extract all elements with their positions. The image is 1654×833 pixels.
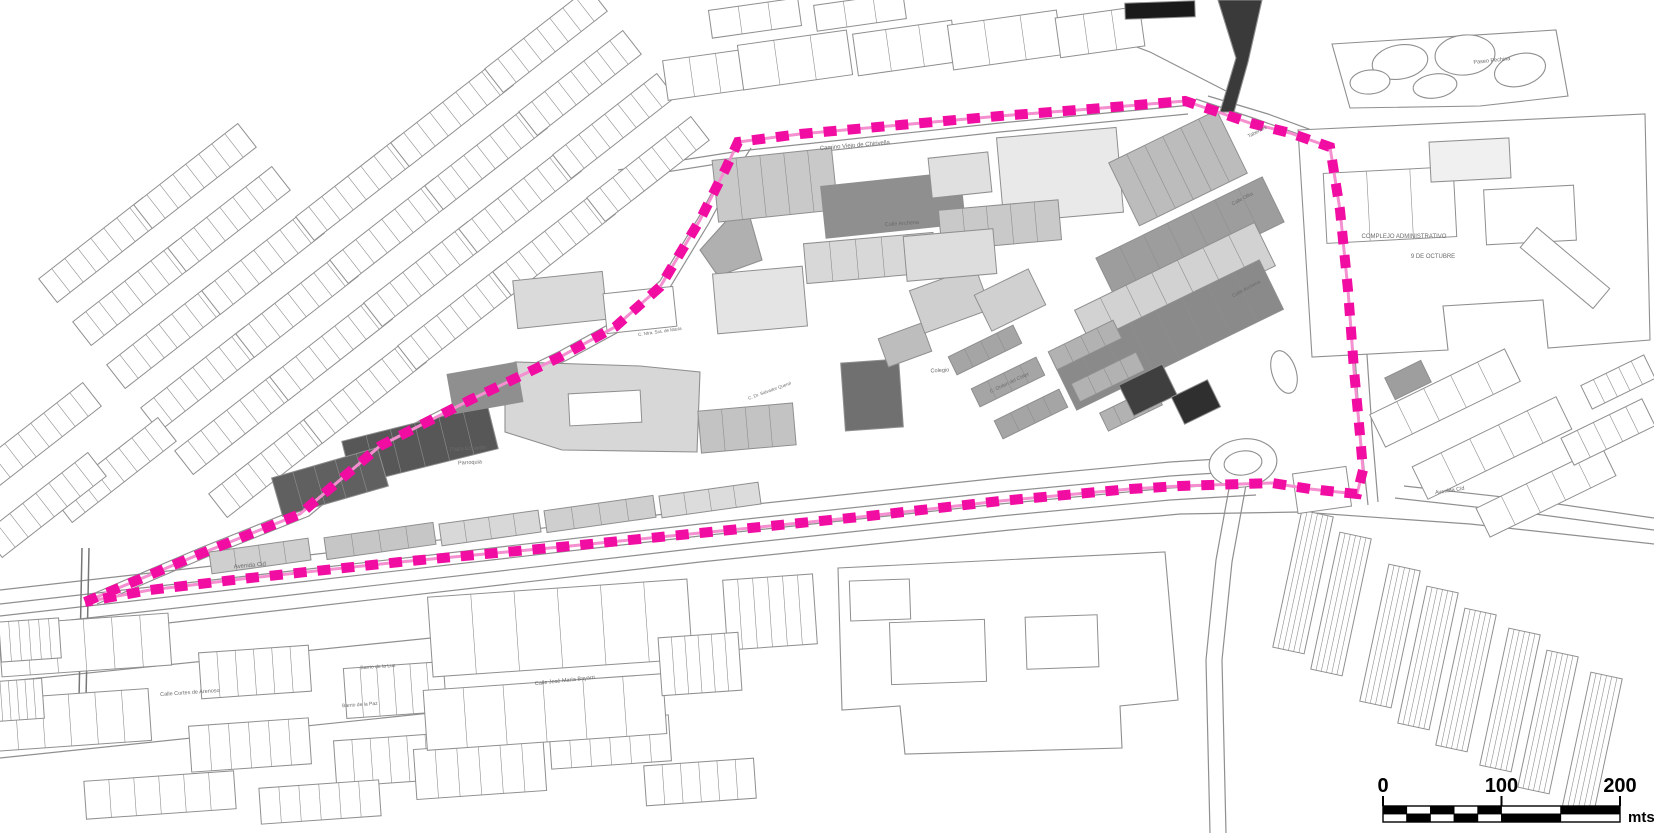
building-block [1125, 1, 1196, 19]
scalebar-label: 100 [1485, 775, 1518, 797]
south-city-block [658, 632, 742, 695]
building-block [568, 390, 642, 426]
street-label: Colegio [930, 368, 949, 375]
building-block [889, 619, 986, 684]
street-label: COMPLEJO ADMINISTRATIVO [1362, 234, 1447, 240]
scalebar-segment [1502, 814, 1561, 822]
scalebar-segment [1454, 814, 1478, 822]
map-page: Avenida CidCamino Viejo de ChirivellaCal… [0, 0, 1654, 833]
building-block [1429, 138, 1511, 182]
building-block [849, 579, 910, 621]
building-block [698, 403, 796, 453]
scalebar-segment [1502, 806, 1561, 814]
building-block [713, 266, 808, 334]
scalebar-unit: mts [1628, 809, 1654, 826]
scalebar-segment [1430, 814, 1454, 822]
building-block [903, 229, 997, 282]
scalebar-segment [1478, 814, 1502, 822]
south-city-block [644, 758, 757, 806]
scalebar-segment [1454, 806, 1478, 814]
building-block [928, 152, 992, 198]
scalebar-label: 200 [1603, 775, 1636, 797]
south-city-block [0, 618, 61, 662]
city-map: Avenida CidCamino Viejo de ChirivellaCal… [0, 0, 1654, 833]
building-block [1025, 615, 1099, 669]
south-city-block [259, 780, 381, 824]
south-city-block [0, 678, 44, 721]
scalebar-segment [1478, 806, 1502, 814]
scalebar-segment [1561, 806, 1620, 814]
scalebar-segment [1561, 814, 1620, 822]
scalebar-segment [1383, 806, 1407, 814]
scalebar-segment [1383, 814, 1407, 822]
building-block [513, 271, 608, 328]
scalebar-segment [1430, 806, 1454, 814]
building-block [841, 359, 904, 431]
south-city-block [189, 718, 312, 772]
scalebar-label: 0 [1377, 775, 1388, 797]
street-label: 9 DE OCTUBRE [1411, 254, 1455, 260]
scalebar-segment [1407, 806, 1431, 814]
scalebar-segment [1407, 814, 1431, 822]
